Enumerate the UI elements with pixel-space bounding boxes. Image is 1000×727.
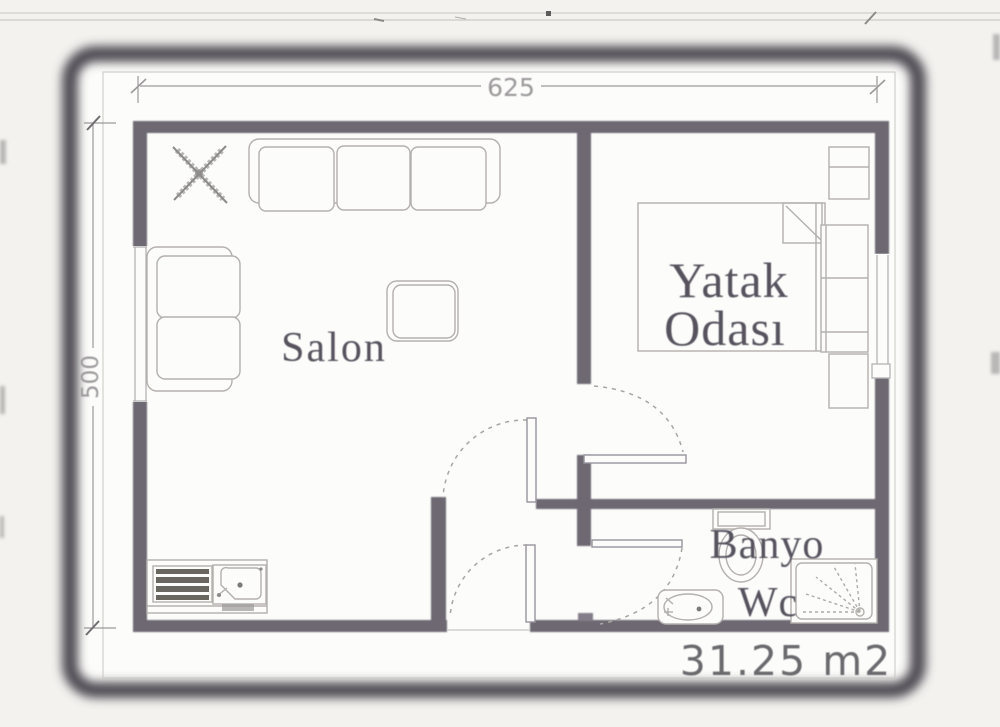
room-label-bath-line2: Wc [738, 580, 798, 626]
wall-north [133, 121, 889, 133]
shower-icon [791, 559, 877, 623]
washbasin-icon [658, 590, 723, 624]
room-label-bath-line1: Banyo [710, 522, 825, 568]
wall-west-upper [133, 121, 147, 248]
door-leaf-bedroom [584, 455, 686, 463]
room-label-bedroom-line2: Odası [664, 300, 786, 356]
wall-west-lower [133, 401, 147, 631]
cabinet-icon [829, 354, 868, 408]
stove-icon [153, 566, 212, 602]
wardrobe-icon [829, 147, 869, 199]
wall-bath-north [536, 499, 889, 509]
wall-salon-bedroom [577, 121, 591, 384]
wall-east-upper [875, 121, 889, 254]
dimension-width-value: 625 [487, 73, 535, 102]
wall-hall-west [431, 497, 446, 631]
nightstand-icon [821, 225, 868, 352]
door-leaf-salon [527, 418, 536, 502]
total-area-value: 31.25 m2 [680, 637, 892, 685]
door-leaf-entrance [526, 545, 535, 622]
window-end-cap [872, 364, 890, 378]
kitchen-sink-icon [213, 565, 266, 611]
wall-stub [578, 613, 593, 621]
door-leaf-bathroom [592, 540, 682, 547]
window-west [132, 246, 148, 402]
dimension-height-value: 500 [78, 355, 104, 399]
sofa-icon [249, 139, 500, 211]
room-label-salon: Salon [281, 325, 387, 371]
window-east [872, 254, 890, 378]
wall-south-left [133, 620, 447, 632]
loveseat-icon [147, 247, 240, 391]
kitchen-counter-icon [147, 560, 267, 613]
scanned-floorplan-page: 625 500 [0, 0, 1000, 727]
floorplan-drawing: 625 500 [0, 0, 1000, 727]
coffee-table-icon [387, 281, 458, 341]
